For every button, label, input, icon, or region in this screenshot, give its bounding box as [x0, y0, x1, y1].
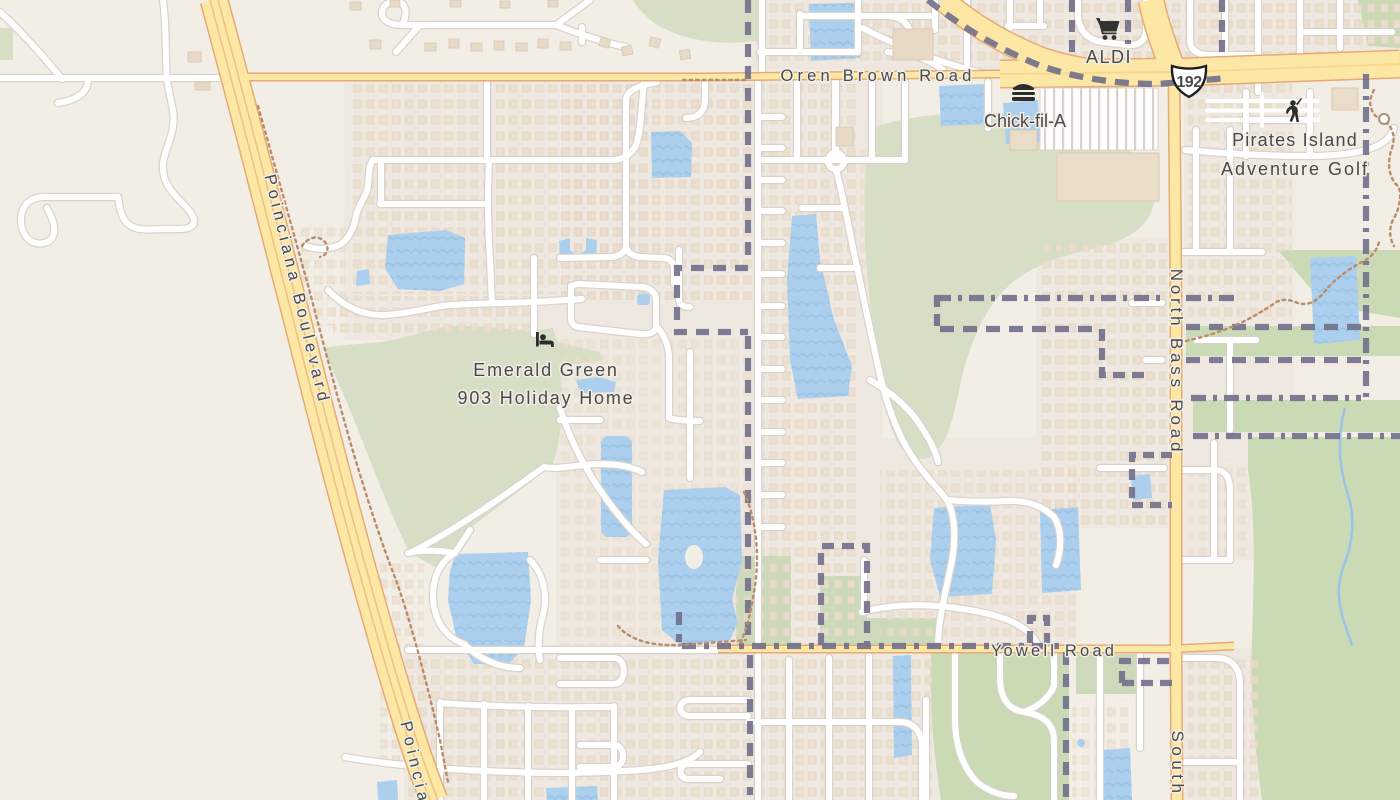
- svg-text:903 Holiday Home: 903 Holiday Home: [458, 388, 635, 408]
- svg-text:Adventure Golf: Adventure Golf: [1221, 159, 1369, 179]
- svg-text:192: 192: [1176, 74, 1202, 91]
- svg-text:Chick-fil-A: Chick-fil-A: [984, 111, 1066, 131]
- svg-text:Oren Brown Road: Oren Brown Road: [780, 67, 975, 85]
- svg-text:Pirates Island: Pirates Island: [1232, 130, 1358, 150]
- svg-text:Yowell Road: Yowell Road: [991, 642, 1117, 660]
- svg-text:North Bass Road: North Bass Road: [1167, 269, 1186, 455]
- svg-text:Emerald Green: Emerald Green: [473, 360, 618, 380]
- svg-text:ALDI: ALDI: [1086, 47, 1132, 67]
- svg-text:South: South: [1168, 731, 1187, 798]
